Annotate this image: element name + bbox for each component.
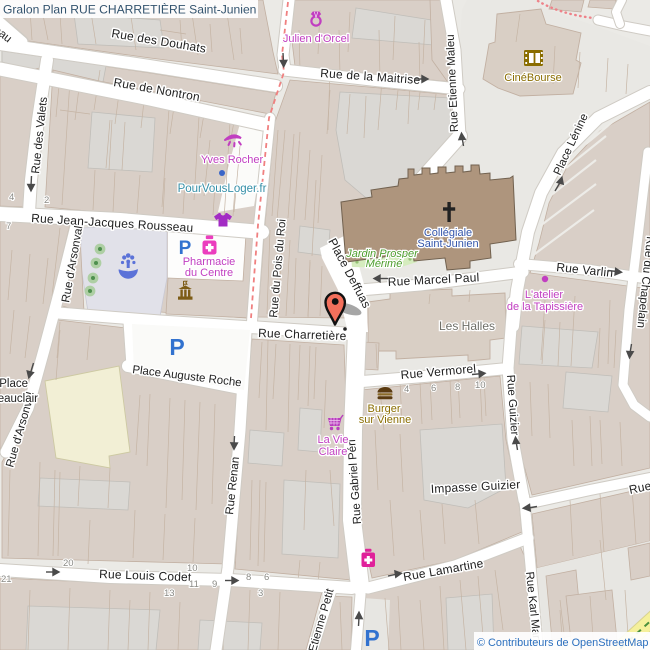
svg-text:La Vie: La Vie bbox=[318, 434, 349, 446]
svg-text:3: 3 bbox=[258, 588, 263, 599]
svg-text:10: 10 bbox=[187, 563, 198, 574]
svg-text:© Contributeurs de OpenStreetM: © Contributeurs de OpenStreetMap bbox=[477, 637, 648, 649]
svg-text:Mérimé: Mérimé bbox=[366, 258, 403, 270]
svg-text:21: 21 bbox=[1, 574, 12, 585]
svg-text:6: 6 bbox=[431, 383, 436, 394]
svg-text:PourVousLoger.fr: PourVousLoger.fr bbox=[178, 183, 267, 195]
svg-text:Beauclair: Beauclair bbox=[0, 393, 38, 405]
svg-text:de la Tapissière: de la Tapissière bbox=[507, 301, 583, 313]
svg-text:6: 6 bbox=[264, 572, 269, 583]
svg-text:Claire: Claire bbox=[319, 446, 348, 458]
svg-text:du Centre: du Centre bbox=[185, 267, 233, 279]
svg-text:Saint-Junien: Saint-Junien bbox=[417, 238, 478, 250]
svg-text:7: 7 bbox=[6, 221, 11, 232]
svg-text:8: 8 bbox=[246, 572, 251, 583]
svg-text:L'atelier: L'atelier bbox=[525, 289, 564, 301]
svg-text:8: 8 bbox=[455, 382, 460, 393]
svg-text:9: 9 bbox=[212, 579, 217, 590]
svg-text:Julien d'Orcel: Julien d'Orcel bbox=[283, 33, 349, 45]
svg-text:13: 13 bbox=[164, 588, 175, 599]
svg-text:CinéBourse: CinéBourse bbox=[504, 72, 561, 84]
svg-text:Gralon Plan RUE CHARRETIÈRE Sa: Gralon Plan RUE CHARRETIÈRE Saint-Junien bbox=[3, 2, 256, 17]
svg-text:2: 2 bbox=[44, 195, 49, 206]
svg-text:P: P bbox=[179, 238, 192, 259]
svg-text:Place: Place bbox=[0, 378, 28, 390]
svg-text:P: P bbox=[364, 625, 379, 650]
svg-text:Yves Rocher: Yves Rocher bbox=[201, 154, 264, 166]
svg-text:P: P bbox=[169, 334, 184, 360]
svg-text:4: 4 bbox=[9, 192, 14, 203]
svg-text:4: 4 bbox=[404, 384, 409, 395]
svg-text:20: 20 bbox=[63, 558, 74, 569]
svg-text:sur Vienne: sur Vienne bbox=[359, 414, 411, 426]
svg-text:Les Halles: Les Halles bbox=[439, 319, 495, 333]
svg-text:11: 11 bbox=[189, 579, 199, 590]
svg-text:10: 10 bbox=[475, 380, 486, 391]
